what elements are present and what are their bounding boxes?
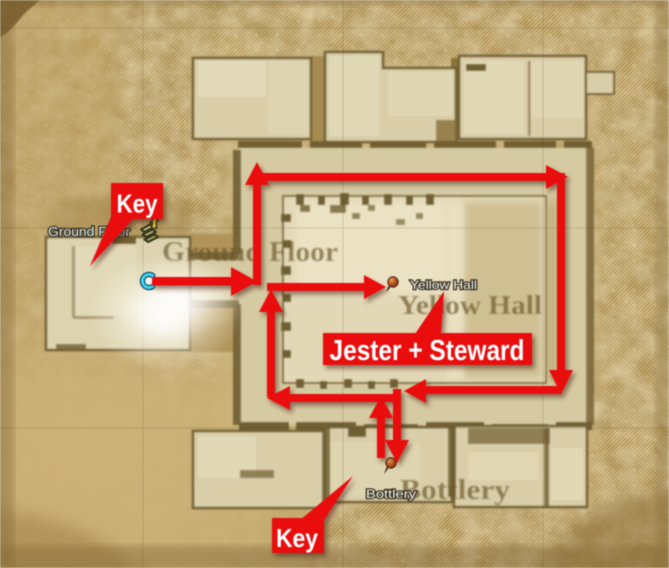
svg-text:Bottlery: Bottlery (366, 487, 416, 501)
svg-text:Jester + Steward: Jester + Steward (330, 335, 525, 367)
svg-text:Yellow Hall: Yellow Hall (398, 290, 543, 320)
svg-text:Bottlery: Bottlery (400, 475, 510, 506)
svg-text:Yellow Hall: Yellow Hall (410, 278, 477, 292)
svg-text:Key: Key (117, 189, 158, 219)
svg-text:Key: Key (276, 523, 318, 553)
